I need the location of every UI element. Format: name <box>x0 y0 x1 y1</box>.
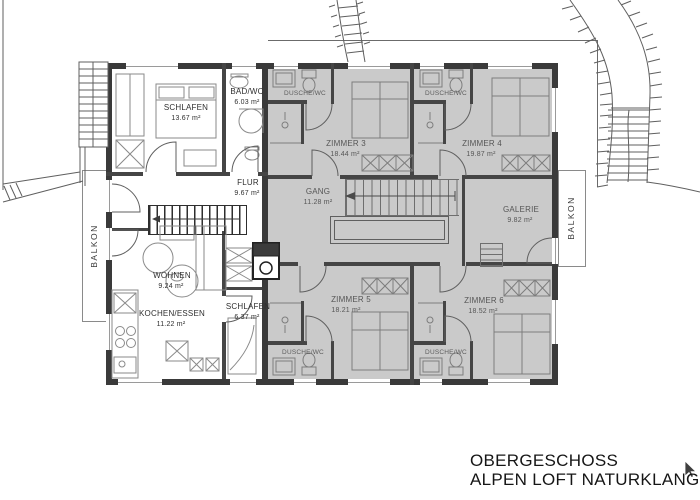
furniture-schlafen-1 <box>116 74 216 168</box>
furniture-kueche <box>112 290 219 378</box>
room-label-schlafen-1: SCHLAFEN <box>164 104 208 112</box>
room-label-schlafen-2: SCHLAFEN <box>226 303 270 311</box>
room-area-bad-wc: 6.03 m² <box>234 99 259 106</box>
fixtures-dusche-wc <box>270 70 463 375</box>
room-label-wohnen: WOHNEN <box>153 272 191 280</box>
furniture-wardrobes <box>362 155 550 296</box>
room-label-dusche-wc-2: DUSCHE/WC <box>425 91 467 98</box>
room-area-galerie: 9.82 m² <box>507 217 532 224</box>
stair-arrows <box>152 191 455 223</box>
room-label-flur: FLUR <box>237 179 259 187</box>
project-title: ALPEN LOFT NATURKLANG <box>470 471 700 490</box>
room-label-kochen-essen: KOCHEN/ESSEN <box>139 310 205 318</box>
floor-plan: SCHLAFEN 13.67 m² BAD/WC 6.03 m² FLUR 9.… <box>0 0 700 500</box>
room-label-bad-wc: BAD/WC <box>230 88 263 96</box>
room-area-gang: 11.28 m² <box>304 199 333 206</box>
title-block: OBERGESCHOSS ALPEN LOFT NATURKLANG <box>470 452 700 489</box>
room-area-kochen-essen: 11.22 m² <box>157 321 186 328</box>
room-area-zimmer-3: 18.44 m² <box>330 151 359 158</box>
room-area-wohnen: 9.24 m² <box>158 283 183 290</box>
plan-linework <box>0 0 700 500</box>
exterior-stair-top-left <box>79 62 108 186</box>
stepped-road-top-right <box>562 0 662 183</box>
room-area-schlafen-2: 6.37 m² <box>234 314 259 321</box>
furniture-schlafen-2 <box>226 248 256 374</box>
room-label-zimmer-4: ZIMMER 4 <box>462 140 502 148</box>
room-label-zimmer-3: ZIMMER 3 <box>326 140 366 148</box>
room-area-zimmer-6: 18.52 m² <box>468 308 497 315</box>
stone-path-top-center <box>329 0 370 62</box>
balcony-right-label: BALKON <box>566 196 576 240</box>
room-label-zimmer-5: ZIMMER 5 <box>331 296 371 304</box>
room-label-dusche-wc-3: DUSCHE/WC <box>282 350 324 357</box>
balcony-left-label: BALKON <box>89 224 99 268</box>
room-label-dusche-wc-4: DUSCHE/WC <box>425 350 467 357</box>
room-label-gang: GANG <box>306 188 330 196</box>
room-area-schlafen-1: 13.67 m² <box>171 115 200 122</box>
room-area-zimmer-5: 18.21 m² <box>331 307 360 314</box>
room-label-dusche-wc-1: DUSCHE/WC <box>284 91 326 98</box>
furniture-zimmer-beds <box>352 78 550 374</box>
floor-title: OBERGESCHOSS <box>470 452 700 471</box>
room-area-flur: 9.67 m² <box>234 190 259 197</box>
room-label-galerie: GALERIE <box>503 206 539 214</box>
room-label-zimmer-6: ZIMMER 6 <box>464 297 504 305</box>
room-area-zimmer-4: 19.87 m² <box>466 151 495 158</box>
furniture-wohnen <box>143 226 226 297</box>
chimney <box>253 243 279 279</box>
